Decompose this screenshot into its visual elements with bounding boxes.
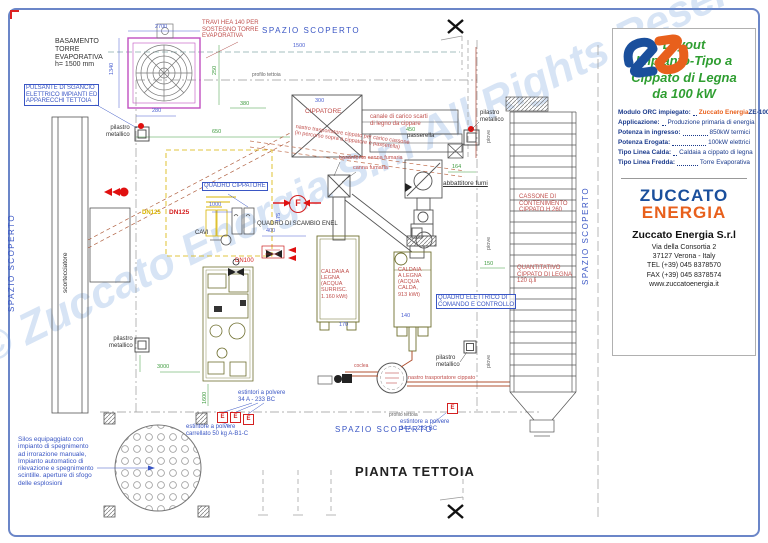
canale-carico-label: canale di carico scarti di legno da cipp…: [370, 114, 428, 127]
spec-row-linea-calda: Tipo Linea Calda: Caldaia a cippato di l…: [618, 148, 750, 158]
profilo-tettoia-label-top: profilo tettoia: [252, 73, 281, 79]
travi-hea-label: TRAVI HEA 140 PER SOSTEGNO TORRE EVAPORA…: [202, 20, 259, 40]
abbattitore-fumi-group: [405, 160, 442, 246]
pulsante-sgancio-label: PULSANTE DI SGANCIO ELETTRICO IMPIANTI E…: [24, 84, 99, 106]
piove-label-2: piove: [486, 230, 492, 250]
dim-300: 300: [315, 99, 324, 105]
dim-250: 250: [213, 66, 219, 75]
abbattitore-fumi-label: abbattitore fumi: [443, 180, 488, 187]
ze-logo-icon: [613, 29, 699, 83]
dn125-label-red: DN125: [169, 209, 189, 216]
caldaia-surriscaldata-label: CALDAIA A LEGNA (ACQUA SURRISC. 1.160 kW…: [321, 269, 349, 300]
spec-value-accent: Zuccato Energia: [699, 108, 749, 118]
piove-label-3: piove: [486, 348, 492, 368]
spec-row-potenza-ingresso: Potenza in ingresso: 850kW termici: [618, 128, 750, 138]
dn100-label: DN100: [235, 258, 254, 265]
spec-label: Modulo ORC impiegato:: [618, 108, 691, 118]
company-address: Via della Consortia 2 37127 Verona - Ita…: [613, 243, 755, 288]
spec-row-linea-fredda: Tipo Linea Fredda: Torre Evaporativa: [618, 158, 750, 168]
spec-table: Modulo ORC impiegato: Zuccato Energia ZE…: [618, 108, 750, 168]
canna-fumaria-label: canna fumaria: [353, 165, 388, 171]
f-section-marker: F: [289, 195, 307, 213]
dim-280: 280: [152, 109, 161, 115]
pilastro-label-2: pilastro metallico: [480, 110, 504, 123]
estintore-carrellato-label: estintore a polvere carrellato 50 kg A-B…: [186, 424, 248, 437]
estintori-polvere-label: estintori a polvere 34 A - 233 BC: [238, 390, 285, 403]
basamento-canna-label: basamento canna fumaria: [339, 155, 403, 161]
cassone-label: CASSONE DI CONTENIMENTO CIPPATO H 260: [519, 194, 568, 214]
coclea-nastro-group: [318, 351, 510, 393]
dim-150: 150: [484, 262, 493, 268]
dim-170: 170: [339, 323, 348, 329]
pilastro-label-3: pilastro metallico: [109, 336, 133, 349]
e-extinguisher-marker-4: E: [447, 403, 458, 414]
dim-400: 400: [266, 229, 275, 235]
zuccato-energia-logo: ZUCCATO ENERGIA: [613, 187, 755, 223]
pilastro-label-4: pilastro metallico: [436, 355, 460, 368]
cavi-label: CAVI: [195, 230, 209, 237]
dim-650: 650: [212, 130, 221, 136]
dim-380: 380: [240, 102, 249, 108]
spazio-scoperto-left: SPAZIO SCOPERTO: [8, 192, 17, 312]
scortecciatore-label: scortecciatore: [62, 211, 69, 293]
dim-140: 140: [401, 314, 410, 320]
dim-3000: 3000: [157, 365, 169, 371]
basamento-torre-label: BASAMENTO TORRE EVAPORATIVA h= 1500 mm: [55, 38, 103, 69]
passerella-label: passerella: [407, 133, 434, 140]
torre-evaporativa: [95, 24, 290, 137]
spazio-scoperto-right: SPAZIO SCOPERTO: [582, 175, 591, 285]
cippatore-label: CIPPATORE: [305, 108, 341, 115]
company-name: Zuccato Energia S.r.l: [613, 229, 755, 241]
spec-row-potenza-erogata: Potenza Erogata: 100kW elettrici: [618, 138, 750, 148]
dim-1340: 1340: [110, 63, 116, 75]
spec-value: ZE-100-LT: [749, 108, 768, 118]
caldaia-acqua-calda-label: CALDAIA A LEGNA (ACQUA CALDA, 913 kWt): [398, 267, 422, 298]
e-extinguisher-marker-2: E: [230, 412, 241, 423]
dim-450: 450: [406, 128, 415, 134]
spec-row-modulo: Modulo ORC impiegato: Zuccato Energia ZE…: [618, 108, 750, 118]
dim-175: 175: [277, 213, 283, 222]
e-extinguisher-marker-1: E: [217, 412, 228, 423]
quantitativo-label: QUANTITATIVO CIPPATO DI LEGNA 120 q.li: [517, 265, 572, 285]
estintore-polvere-label-right: estintore a polvere 34 A - 233 BC: [400, 419, 449, 432]
e-extinguisher-marker-3: E: [243, 414, 254, 425]
dim-2700: 2700: [155, 25, 167, 31]
pilastro-label-1: pilastro metallico: [106, 125, 130, 138]
orc-module: [203, 267, 253, 381]
brand-zuccato: ZUCCATO: [613, 187, 755, 204]
dim-164: 164: [452, 165, 461, 171]
dn125-label-yellow: DN125: [142, 210, 161, 217]
title-block-panel: Layout Impianto-Tipo a Cippato di Legna …: [612, 28, 756, 356]
dim-1600: 1600: [203, 392, 209, 404]
nastro-trasportatore-label: nastro trasportatore cippato: [408, 375, 475, 381]
brand-energia: ENERGIA: [613, 204, 755, 223]
spec-row-applicazione: Applicazione: Produzione primaria di ene…: [618, 118, 750, 128]
panel-divider: [621, 178, 747, 179]
quadro-elettrico-label: QUADRO ELETTRICO DI COMANDO E CONTROLLO: [436, 294, 516, 309]
dim-1000: 1000: [209, 203, 221, 209]
dim-1500: 1500: [293, 44, 305, 50]
drawing-sheet: © Zuccato Energia S.r.l All Rights Reser…: [0, 0, 768, 543]
silos-note: Silos equipaggiato con impianto di spegn…: [18, 436, 94, 487]
spazio-scoperto-top: SPAZIO SCOPERTO: [262, 27, 360, 36]
coclea-label: coclea: [354, 364, 368, 370]
section-x-marks: [448, 20, 463, 518]
quadro-cippatore-label: QUADRO CIPPATORE: [202, 182, 268, 191]
quadro-scambio-enel-label: QUADRO DI SCAMBIO ENEL: [257, 221, 338, 228]
piove-label-1: piove: [486, 123, 492, 143]
profilo-tettoia-label-bottom: profilo tettoia: [389, 413, 418, 419]
pianta-tettoia-title: PIANTA TETTOIA: [355, 465, 475, 480]
